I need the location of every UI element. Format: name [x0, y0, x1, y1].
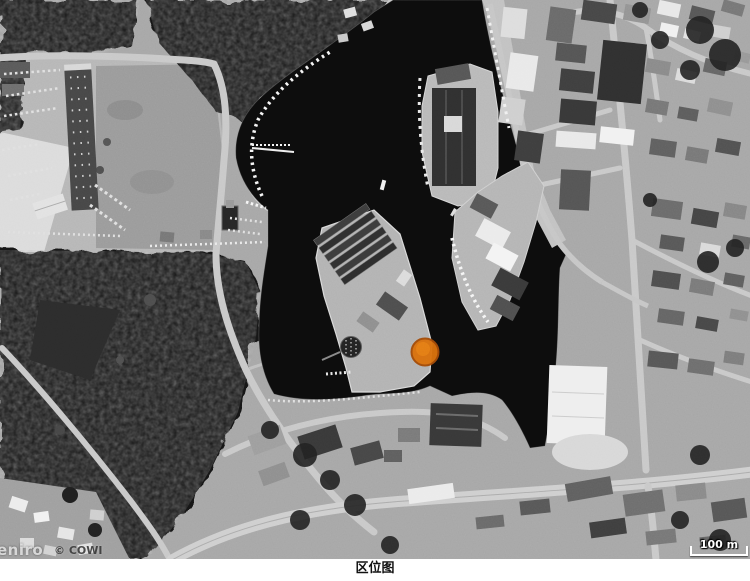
figure-caption: 区位图 [0, 559, 750, 581]
map-scale-bar: 100 m [690, 541, 748, 556]
scale-bar-label: 100 m [690, 538, 748, 551]
map-provider-watermark: eniro [0, 541, 43, 559]
satellite-map: eniro © COWI 100 m [0, 0, 750, 559]
location-map-figure: eniro © COWI 100 m 区位图 [0, 0, 750, 581]
photo-grain [0, 0, 750, 559]
aerial-photo [0, 0, 750, 559]
imagery-copyright: © COWI [54, 544, 102, 557]
